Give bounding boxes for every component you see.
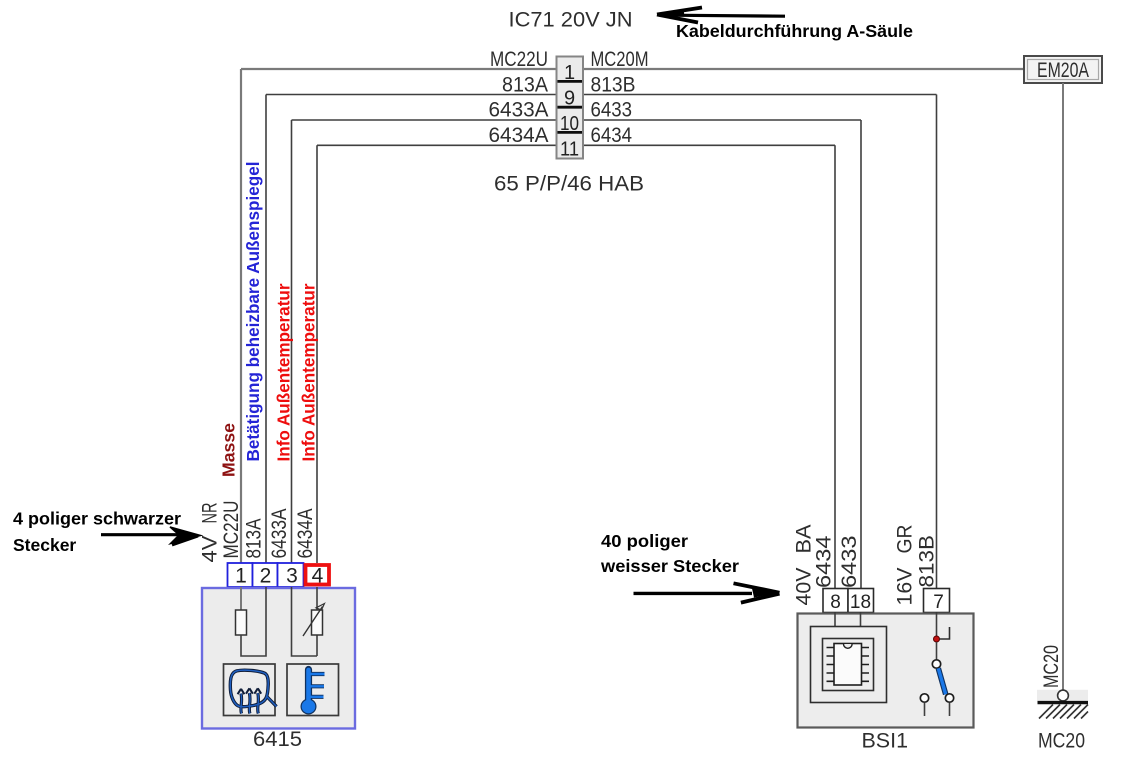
svg-text:EM20A: EM20A — [1037, 59, 1089, 82]
svg-text:4 poliger schwarzer: 4 poliger schwarzer — [13, 509, 181, 529]
svg-text:6434: 6434 — [813, 535, 836, 588]
svg-text:MC20M: MC20M — [591, 48, 649, 71]
svg-text:6415: 6415 — [253, 728, 302, 751]
svg-text:2: 2 — [260, 565, 272, 588]
svg-text:6434A: 6434A — [294, 509, 317, 559]
svg-text:6434A: 6434A — [489, 124, 549, 147]
svg-text:4: 4 — [312, 565, 324, 588]
svg-text:MC20: MC20 — [1040, 645, 1063, 688]
svg-text:8: 8 — [830, 592, 841, 613]
svg-text:7: 7 — [933, 592, 944, 613]
svg-text:813A: 813A — [502, 73, 548, 96]
svg-text:MC22U: MC22U — [490, 48, 548, 71]
svg-text:813B: 813B — [916, 535, 939, 588]
svg-text:6433: 6433 — [838, 536, 861, 589]
svg-text:3: 3 — [286, 565, 298, 588]
svg-text:6433A: 6433A — [489, 99, 549, 122]
svg-text:10: 10 — [560, 113, 579, 135]
svg-text:4V: 4V — [199, 536, 222, 563]
svg-text:GR: GR — [894, 525, 917, 554]
svg-text:1: 1 — [564, 62, 575, 84]
svg-text:IC71 20V JN: IC71 20V JN — [509, 9, 633, 32]
svg-text:NR: NR — [199, 503, 222, 524]
svg-text:1: 1 — [235, 565, 247, 588]
svg-text:18: 18 — [850, 592, 871, 613]
svg-text:Kabeldurchführung A-Säule: Kabeldurchführung A-Säule — [676, 21, 913, 41]
svg-text:6434: 6434 — [591, 124, 633, 147]
svg-text:813B: 813B — [591, 73, 636, 96]
svg-text:65 P/P/46 HAB: 65 P/P/46 HAB — [494, 173, 644, 196]
svg-text:16V: 16V — [894, 568, 917, 606]
svg-text:813A: 813A — [243, 519, 266, 559]
svg-text:Betätigung beheizbare Außenspi: Betätigung beheizbare Außenspiegel — [243, 162, 263, 462]
svg-text:Info Außentemperatur: Info Außentemperatur — [274, 283, 294, 461]
svg-text:6433A: 6433A — [268, 509, 291, 559]
svg-text:40 poliger: 40 poliger — [601, 531, 688, 551]
svg-text:weisser Stecker: weisser Stecker — [600, 556, 739, 576]
svg-text:6433: 6433 — [591, 99, 633, 122]
svg-text:Masse: Masse — [219, 423, 239, 477]
svg-text:BSI1: BSI1 — [862, 730, 909, 753]
svg-text:MC22U: MC22U — [220, 501, 243, 559]
svg-text:11: 11 — [560, 138, 579, 160]
svg-text:MC20: MC20 — [1038, 730, 1085, 753]
svg-text:Info Außentemperatur: Info Außentemperatur — [299, 283, 319, 461]
svg-text:9: 9 — [564, 88, 575, 110]
svg-text:Stecker: Stecker — [13, 535, 76, 555]
